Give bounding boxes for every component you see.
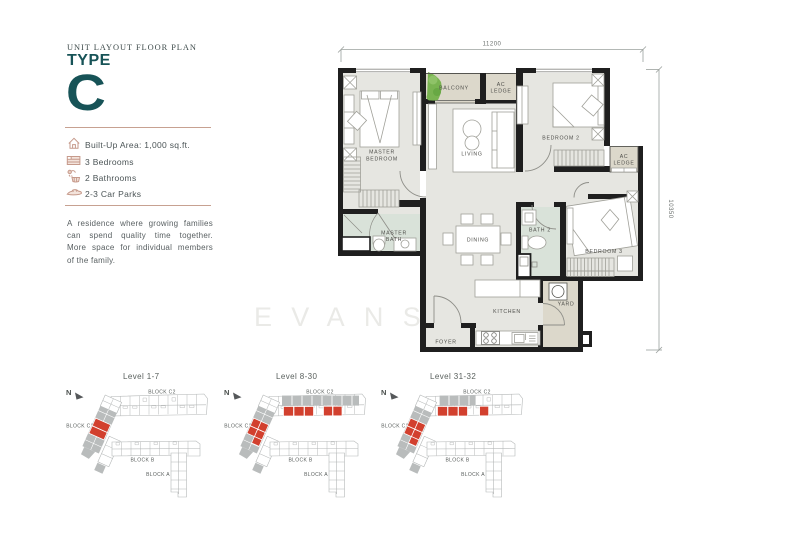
svg-text:BATH: BATH bbox=[386, 237, 402, 243]
svg-text:FOYER: FOYER bbox=[435, 340, 456, 346]
svg-text:LEDGE: LEDGE bbox=[613, 161, 634, 167]
svg-text:BEDROOM 2: BEDROOM 2 bbox=[542, 136, 579, 142]
svg-text:MASTER: MASTER bbox=[369, 150, 395, 156]
svg-text:Level 31-32: Level 31-32 bbox=[430, 372, 476, 381]
svg-text:LEDGE: LEDGE bbox=[490, 89, 511, 95]
svg-text:YARD: YARD bbox=[558, 302, 575, 308]
svg-text:11200: 11200 bbox=[483, 42, 502, 48]
svg-text:BALCONY: BALCONY bbox=[439, 86, 469, 92]
svg-text:AC: AC bbox=[620, 154, 629, 160]
svg-text:EVANS: EVANS bbox=[254, 302, 440, 332]
svg-text:Level 8-30: Level 8-30 bbox=[276, 372, 318, 381]
svg-text:MASTER: MASTER bbox=[381, 231, 407, 237]
svg-text:AC: AC bbox=[497, 82, 506, 88]
svg-text:10350: 10350 bbox=[667, 199, 673, 218]
svg-text:LIVING: LIVING bbox=[461, 152, 482, 158]
svg-text:KITCHEN: KITCHEN bbox=[493, 309, 521, 315]
svg-text:Level 1-7: Level 1-7 bbox=[123, 372, 160, 381]
svg-text:BEDROOM 3: BEDROOM 3 bbox=[585, 249, 622, 255]
svg-text:DINING: DINING bbox=[467, 238, 489, 244]
svg-text:BEDROOM: BEDROOM bbox=[366, 157, 398, 163]
svg-text:BATH 2: BATH 2 bbox=[529, 228, 551, 234]
